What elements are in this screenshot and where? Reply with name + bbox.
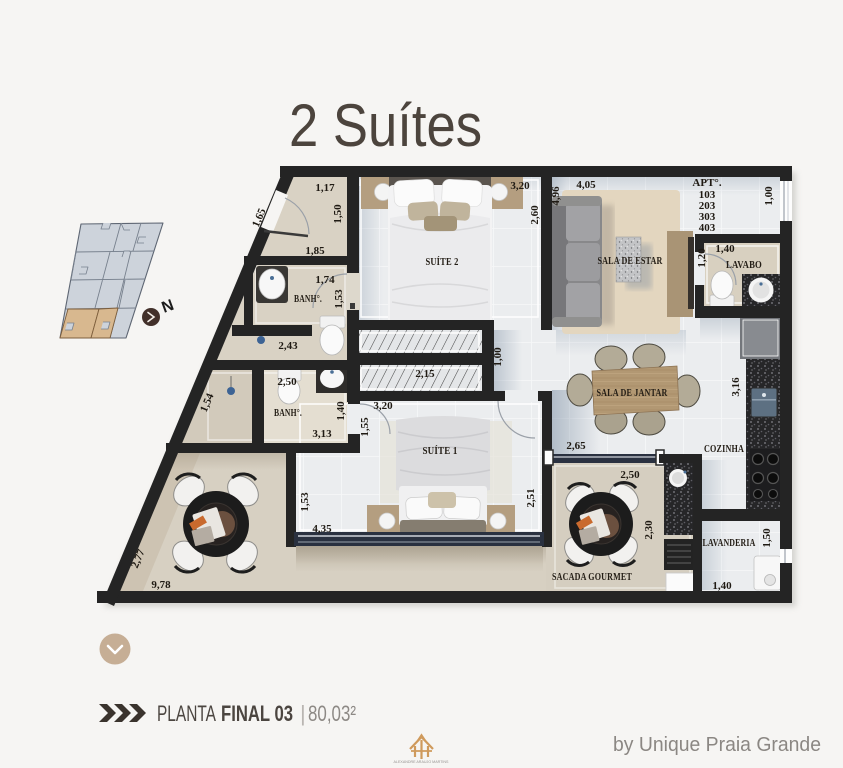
svg-text:1,50: 1,50 bbox=[332, 204, 344, 224]
svg-text:4,05: 4,05 bbox=[576, 179, 596, 191]
svg-text:2,30: 2,30 bbox=[643, 520, 655, 540]
svg-text:3,13: 3,13 bbox=[312, 428, 332, 440]
svg-text:1,00: 1,00 bbox=[763, 186, 775, 206]
svg-text:2,43: 2,43 bbox=[278, 340, 298, 352]
svg-text:1,40: 1,40 bbox=[712, 580, 732, 592]
svg-text:3,16: 3,16 bbox=[730, 377, 742, 397]
svg-text:1,85: 1,85 bbox=[305, 245, 325, 257]
svg-text:1,00: 1,00 bbox=[492, 347, 504, 367]
svg-text:1,53: 1,53 bbox=[299, 492, 311, 512]
svg-text:2 Suítes: 2 Suítes bbox=[289, 92, 482, 159]
svg-text:SALA DE JANTAR: SALA DE JANTAR bbox=[597, 388, 668, 399]
svg-text:APT°.: APT°. bbox=[692, 177, 721, 189]
svg-text:ALEXANDRE ARAUJO MARTINS: ALEXANDRE ARAUJO MARTINS bbox=[394, 760, 449, 764]
svg-text:2,65: 2,65 bbox=[566, 440, 586, 452]
svg-text:LAVABO: LAVABO bbox=[726, 260, 762, 271]
svg-text:BANH°.: BANH°. bbox=[294, 294, 322, 305]
svg-text:1,17: 1,17 bbox=[315, 182, 335, 194]
svg-text:1,55: 1,55 bbox=[359, 417, 371, 437]
svg-text:LAVANDERIA: LAVANDERIA bbox=[703, 538, 756, 549]
svg-text:1,74: 1,74 bbox=[315, 274, 335, 286]
svg-text:9,78: 9,78 bbox=[151, 579, 171, 591]
svg-text:403: 403 bbox=[699, 222, 716, 234]
svg-text:1,53: 1,53 bbox=[333, 289, 345, 309]
svg-text:COZINHA: COZINHA bbox=[704, 444, 744, 455]
svg-text:BANH°.: BANH°. bbox=[274, 408, 302, 419]
svg-text:1,40: 1,40 bbox=[335, 401, 347, 421]
svg-text:PLANTAFINAL 03|80,03²: PLANTAFINAL 03|80,03² bbox=[157, 701, 356, 726]
svg-text:2,50: 2,50 bbox=[620, 469, 640, 481]
svg-text:3,20: 3,20 bbox=[373, 400, 393, 412]
svg-text:2,50: 2,50 bbox=[277, 376, 297, 388]
svg-text:1,20: 1,20 bbox=[696, 248, 708, 268]
svg-text:1,50: 1,50 bbox=[761, 528, 773, 548]
svg-text:3,20: 3,20 bbox=[510, 180, 530, 192]
svg-text:2,15: 2,15 bbox=[415, 368, 435, 380]
svg-text:2,51: 2,51 bbox=[525, 488, 537, 507]
svg-text:SALA DE ESTAR: SALA DE ESTAR bbox=[598, 256, 663, 267]
svg-text:SUÍTE 2: SUÍTE 2 bbox=[426, 256, 459, 268]
svg-text:1,40: 1,40 bbox=[715, 243, 735, 255]
svg-text:4,96: 4,96 bbox=[550, 186, 562, 206]
svg-text:4,35: 4,35 bbox=[312, 523, 332, 535]
svg-text:by Unique Praia Grande: by Unique Praia Grande bbox=[613, 734, 821, 756]
svg-text:SUÍTE 1: SUÍTE 1 bbox=[423, 445, 458, 457]
svg-text:2,60: 2,60 bbox=[529, 205, 541, 225]
svg-text:SACADA GOURMET: SACADA GOURMET bbox=[552, 572, 632, 583]
